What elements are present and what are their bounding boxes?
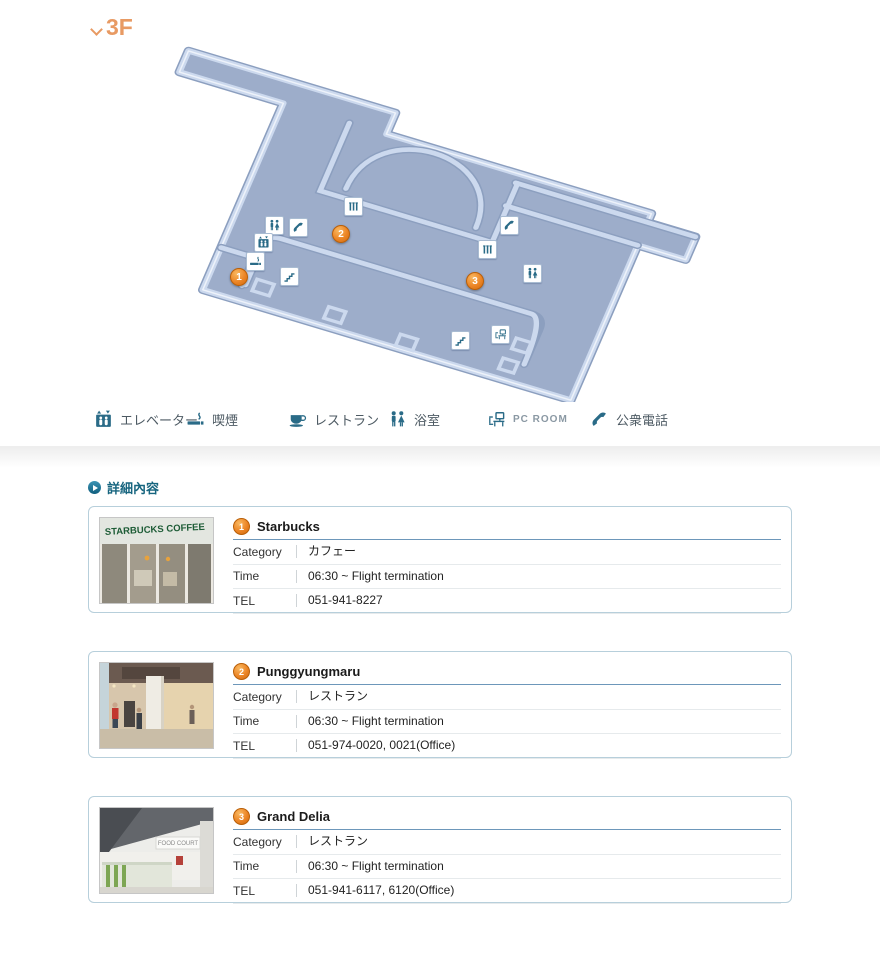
row-value: 051-941-8227 <box>296 594 383 607</box>
table-row: Time 06:30 ~ Flight termination <box>233 855 781 880</box>
store-photo: FOOD COURT <box>99 807 214 894</box>
row-label: TEL <box>233 594 296 608</box>
card-body: 3 Grand Delia Category レストラン Time 06:30 … <box>233 807 781 892</box>
row-value: 06:30 ~ Flight termination <box>296 570 444 583</box>
floor-map: 1 2 3 <box>0 0 880 402</box>
row-value: レストラン <box>296 835 368 848</box>
phone-icon <box>500 216 519 235</box>
store-name: Punggyungmaru <box>257 664 360 679</box>
table-row: TEL 051-974-0020, 0021(Office) <box>233 734 781 759</box>
number-badge: 3 <box>233 808 250 825</box>
legend-item-bath: 浴室 <box>388 410 440 429</box>
card-title-row: 2 Punggyungmaru <box>233 662 781 685</box>
row-label: Category <box>233 545 296 559</box>
detail-card: STARBUCKS COFFEE 1 Starbucks Category カフ… <box>88 506 792 613</box>
detail-card: 2 Punggyungmaru Category レストラン Time 06:3… <box>88 651 792 758</box>
table-row: Category レストラン <box>233 685 781 710</box>
card-body: 2 Punggyungmaru Category レストラン Time 06:3… <box>233 662 781 747</box>
row-value: 051-974-0020, 0021(Office) <box>296 739 455 752</box>
legend-label: 公衆電話 <box>616 410 668 429</box>
table-row: Category カフェー <box>233 540 781 565</box>
elevator-icon <box>94 410 113 429</box>
legend-item-restaurant: レストラン <box>288 410 379 429</box>
table-row: TEL 051-941-8227 <box>233 589 781 614</box>
legend-item-smoking: 喫煙 <box>186 410 238 429</box>
section-title: 詳細內容 <box>107 478 159 497</box>
legend-item-phone: 公衆電話 <box>590 410 668 429</box>
table-row: TEL 051-941-6117, 6120(Office) <box>233 879 781 904</box>
table-row: Time 06:30 ~ Flight termination <box>233 710 781 735</box>
row-value: 06:30 ~ Flight termination <box>296 715 444 728</box>
svg-text:FOOD COURT: FOOD COURT <box>158 841 199 847</box>
store-photo <box>99 662 214 749</box>
store-name: Starbucks <box>257 519 320 534</box>
stairs-icon <box>451 331 470 350</box>
legend-label: 浴室 <box>414 410 440 429</box>
row-label: Category <box>233 835 296 849</box>
row-label: Time <box>233 569 296 583</box>
map-marker-3[interactable]: 3 <box>466 272 484 290</box>
restaurant-icon <box>288 410 307 429</box>
smoking-icon <box>186 410 205 429</box>
row-value: レストラン <box>296 690 368 703</box>
number-badge: 2 <box>233 663 250 680</box>
map-marker-1[interactable]: 1 <box>230 268 248 286</box>
bath-icon <box>523 264 542 283</box>
stairs-icon <box>280 267 299 286</box>
bath-icon <box>388 410 407 429</box>
detail-card: FOOD COURT 3 Grand Delia Category レストラン … <box>88 796 792 903</box>
legend-item-elevator: エレベーター <box>94 410 198 429</box>
legend-shadow-divider <box>0 446 880 468</box>
legend-label: レストラン <box>314 410 379 429</box>
gate-icon <box>344 197 363 216</box>
row-value: 051-941-6117, 6120(Office) <box>296 884 454 897</box>
row-value: カフェー <box>296 545 356 558</box>
pcroom-icon <box>487 410 506 429</box>
number-badge: 1 <box>233 518 250 535</box>
smoking-icon <box>246 252 265 271</box>
section-header: 詳細內容 <box>88 478 159 497</box>
row-label: Time <box>233 859 296 873</box>
arrow-bullet-icon <box>88 481 101 494</box>
store-name: Grand Delia <box>257 809 330 824</box>
row-label: TEL <box>233 739 296 753</box>
card-body: 1 Starbucks Category カフェー Time 06:30 ~ F… <box>233 517 781 602</box>
legend-item-pcroom: PC ROOM <box>487 410 568 429</box>
legend-label: PC ROOM <box>513 414 568 425</box>
row-value: 06:30 ~ Flight termination <box>296 860 444 873</box>
store-photo: STARBUCKS COFFEE <box>99 517 214 604</box>
floor-plan-drawing <box>0 0 880 402</box>
map-marker-2[interactable]: 2 <box>332 225 350 243</box>
phone-icon <box>289 218 308 237</box>
card-title-row: 1 Starbucks <box>233 517 781 540</box>
gate-icon <box>478 240 497 259</box>
card-title-row: 3 Grand Delia <box>233 807 781 830</box>
row-label: Category <box>233 690 296 704</box>
legend-label: 喫煙 <box>212 410 238 429</box>
row-label: TEL <box>233 884 296 898</box>
row-label: Time <box>233 714 296 728</box>
map-legend: エレベーター 喫煙 レストラン 浴室 PC ROOM 公衆電話 <box>0 410 880 444</box>
table-row: Time 06:30 ~ Flight termination <box>233 565 781 590</box>
phone-icon <box>590 410 609 429</box>
table-row: Category レストラン <box>233 830 781 855</box>
elevator-icon <box>254 233 273 252</box>
pcroom-icon <box>491 325 510 344</box>
